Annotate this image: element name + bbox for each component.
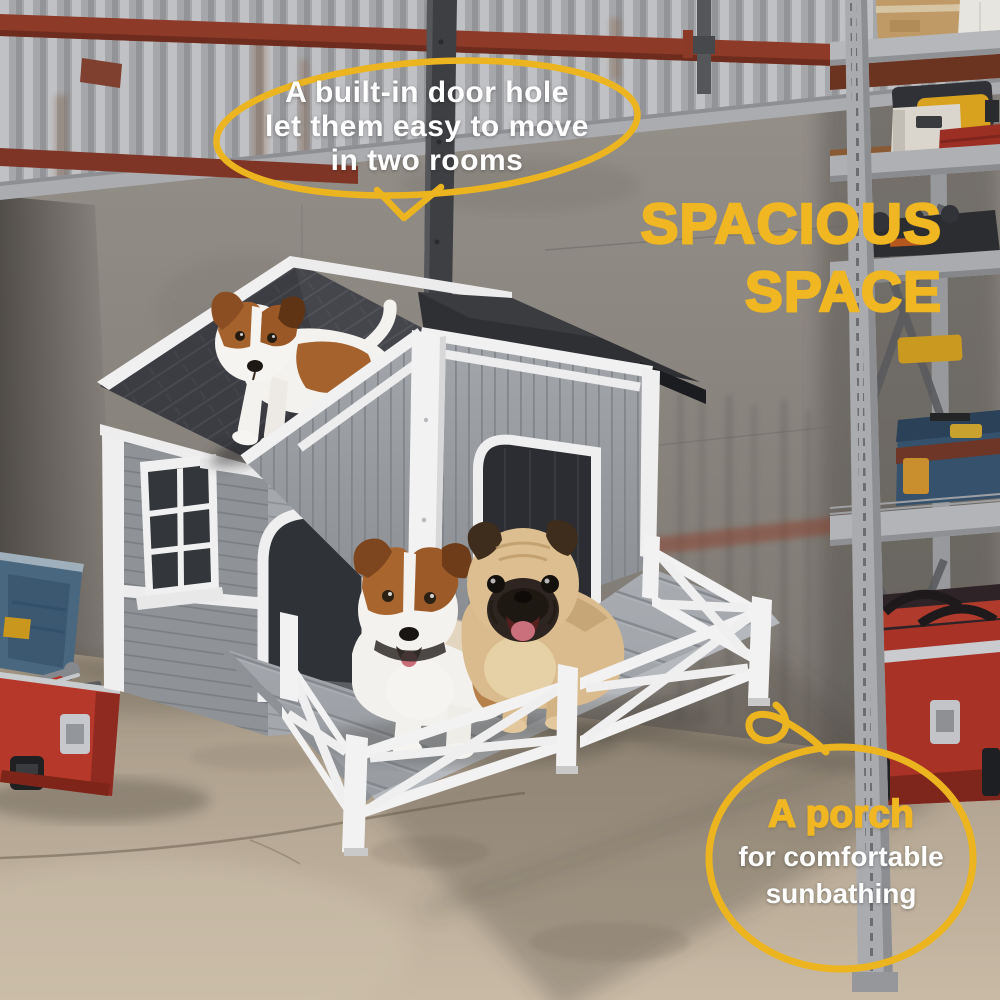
- window: [136, 454, 224, 610]
- headline-line1: SPACIOUS: [641, 190, 943, 258]
- porch-callout-title: A porch: [711, 792, 971, 838]
- door-hole-callout-line3: in two rooms: [207, 144, 647, 178]
- porch-callout-line2: sunbathing: [711, 875, 971, 912]
- door-hole-callout-line1: A built-in door hole: [207, 76, 647, 110]
- spacious-space-headline: SPACIOUS SPACE: [641, 190, 943, 326]
- door-hole-callout: A built-in door hole let them easy to mo…: [207, 76, 647, 178]
- marketing-image: A built-in door hole let them easy to mo…: [0, 0, 1000, 1000]
- porch-callout-line1: for comfortable: [711, 838, 971, 875]
- door-hole-callout-line2: let them easy to move: [207, 110, 647, 144]
- blue-toolbox: [896, 410, 1000, 506]
- headline-line2: SPACE: [641, 258, 943, 326]
- porch-callout: A porch for comfortable sunbathing: [711, 792, 971, 912]
